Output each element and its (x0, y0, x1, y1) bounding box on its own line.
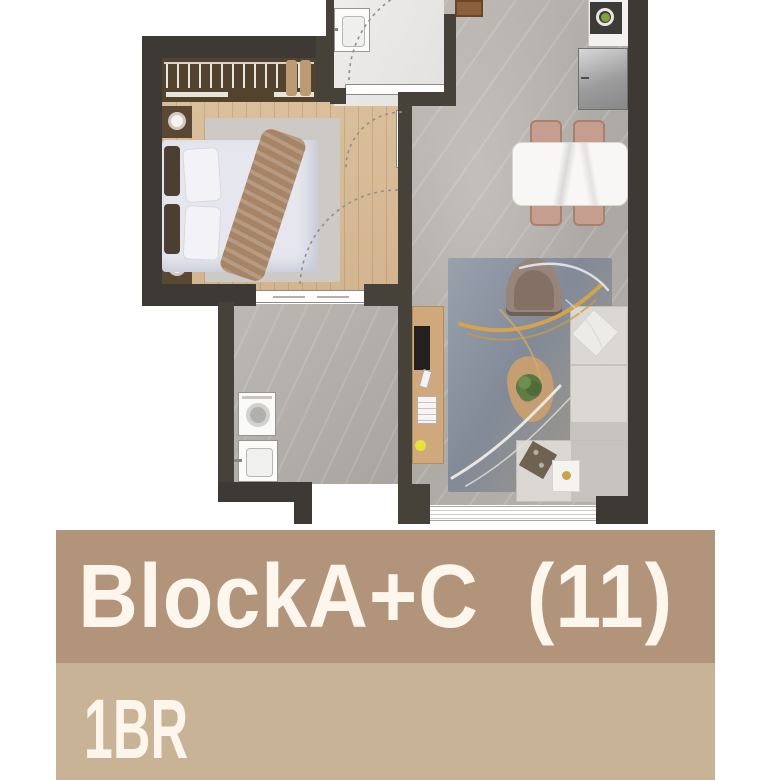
wall-segment (398, 92, 412, 486)
bed-pillow (182, 147, 222, 203)
block-banner: BlockA+C (11) (56, 530, 715, 663)
sink-basin (342, 16, 365, 47)
decor-bowl (562, 471, 571, 480)
washer-control-panel (242, 396, 272, 399)
kitchen-sink (590, 2, 622, 34)
block-label: BlockA+C (11) (56, 552, 673, 642)
wardrobe-shelf (166, 92, 228, 97)
bed-throw-blanket (218, 127, 308, 284)
magazine (417, 396, 437, 424)
sink-faucet (233, 459, 242, 462)
refrigerator (578, 48, 628, 110)
television (414, 326, 430, 370)
sink-basin (246, 448, 273, 477)
entry-doormat (455, 0, 483, 17)
washing-machine (238, 392, 276, 436)
headboard-cushion (164, 146, 180, 196)
wall-segment (444, 14, 456, 106)
table-lamp (168, 112, 186, 130)
unit-type-label: 1BR (56, 687, 188, 771)
dining-table (512, 142, 628, 206)
vegetable-in-sink (601, 13, 610, 22)
wall-segment (628, 0, 648, 506)
bathroom-sink (334, 8, 370, 52)
wall-segment (142, 36, 162, 298)
floor-plan (0, 0, 780, 530)
wall-segment (142, 36, 334, 58)
wall-segment (142, 284, 256, 306)
unit-type-banner: 1BR (56, 663, 715, 780)
wall-segment (398, 484, 430, 524)
armchair-seat (514, 270, 554, 310)
refrigerator-handle (581, 77, 589, 79)
hanging-garment (286, 60, 297, 96)
bed-pillow (183, 205, 222, 261)
living-room-window (428, 506, 598, 521)
hanging-garment (300, 60, 311, 96)
wall-segment (330, 88, 346, 104)
nightstand (162, 106, 192, 138)
double-bed (162, 140, 318, 272)
laundry-sink (238, 440, 278, 482)
decor-accent (415, 440, 426, 451)
wall-segment (294, 482, 312, 524)
wall-segment (596, 496, 648, 524)
headboard-cushion (164, 204, 180, 254)
potted-plant (514, 372, 544, 402)
floor-plan-card: BlockA+C (11) 1BR (0, 0, 780, 780)
washer-door (246, 403, 270, 427)
wall-segment (218, 302, 234, 484)
side-table (552, 460, 580, 492)
sliding-door (254, 290, 366, 303)
